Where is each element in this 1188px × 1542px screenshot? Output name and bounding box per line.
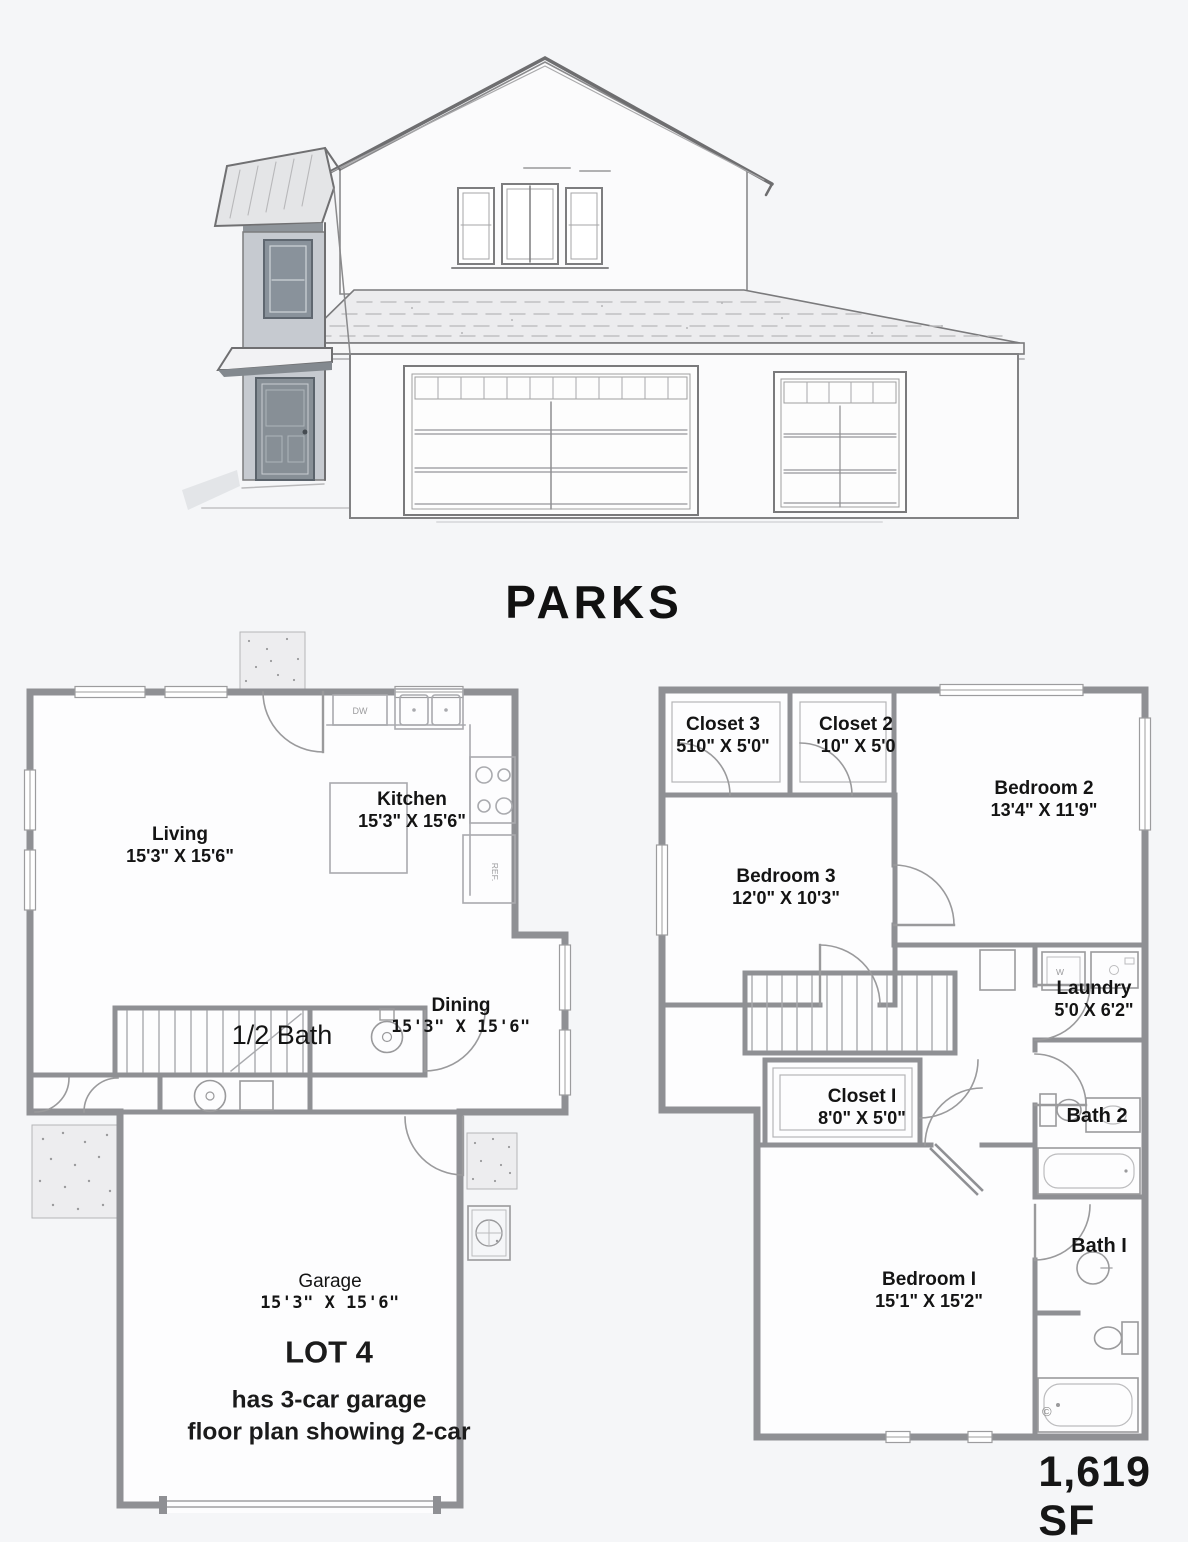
refrigerator-label: REF. bbox=[490, 863, 500, 881]
room-dims: 5'0 X 6'2" bbox=[1054, 1001, 1133, 1022]
room-name: Bedroom 3 bbox=[732, 866, 840, 888]
room-label-closet-1: Closet I 8'0" X 5'0" bbox=[818, 1086, 906, 1130]
plan-title: PARKS bbox=[505, 575, 683, 629]
room-name: Closet 2 bbox=[816, 714, 895, 736]
house-elevation-sketch bbox=[182, 18, 1027, 533]
room-label-bedroom-3: Bedroom 3 12'0" X 10'3" bbox=[732, 866, 840, 910]
room-label-garage: Garage 15'3" X 15'6" bbox=[260, 1271, 400, 1313]
lot-note: LOT 4 has 3-car garage floor plan showin… bbox=[187, 1335, 470, 1450]
room-dims: 15'3" X 15'6" bbox=[391, 1017, 531, 1037]
room-name: Dining bbox=[391, 995, 531, 1017]
room-label-laundry: Laundry 5'0 X 6'2" bbox=[1054, 978, 1133, 1022]
room-label-bedroom-1: Bedroom I 15'1" X 15'2" bbox=[875, 1269, 983, 1313]
lot-note-line2: floor plan showing 2-car bbox=[187, 1417, 470, 1449]
room-label-half-bath: 1/2 Bath bbox=[232, 1020, 333, 1052]
room-label-bedroom-2: Bedroom 2 13'4" X 11'9" bbox=[991, 778, 1098, 822]
floor-plan-flyer: PARKS bbox=[0, 0, 1188, 1542]
room-name: Bedroom I bbox=[875, 1269, 983, 1291]
room-label-living: Living 15'3" X 15'6" bbox=[126, 824, 234, 868]
room-label-closet-2: Closet 2 '10" X 5'0 bbox=[816, 714, 895, 758]
room-dims: 13'4" X 11'9" bbox=[991, 801, 1098, 822]
room-dims: 12'0" X 10'3" bbox=[732, 889, 840, 910]
room-name: Closet 3 bbox=[676, 714, 769, 736]
lot-note-title: LOT 4 bbox=[187, 1335, 470, 1371]
total-area-label: 1,619 SF bbox=[1038, 1448, 1151, 1542]
dishwasher-label: DW bbox=[353, 706, 368, 716]
room-name: Kitchen bbox=[358, 789, 466, 811]
room-label-bath-1: Bath I bbox=[1071, 1235, 1127, 1259]
copyright-mark: © bbox=[1042, 1404, 1052, 1419]
lot-note-line1: has 3-car garage bbox=[187, 1385, 470, 1417]
room-dims: 15'3" X 15'6" bbox=[260, 1293, 400, 1313]
room-dims: 8'0" X 5'0" bbox=[818, 1109, 906, 1130]
room-dims: 15'1" X 15'2" bbox=[875, 1292, 983, 1313]
room-name: Bedroom 2 bbox=[991, 778, 1098, 800]
room-dims: '10" X 5'0 bbox=[816, 737, 895, 758]
washer-label: W bbox=[1056, 967, 1064, 977]
room-label-kitchen: Kitchen 15'3" X 15'6" bbox=[358, 789, 466, 833]
room-dims: 15'3" X 15'6" bbox=[358, 812, 466, 833]
room-dims: 15'3" X 15'6" bbox=[126, 847, 234, 868]
room-label-dining: Dining 15'3" X 15'6" bbox=[391, 995, 531, 1037]
room-name: Living bbox=[126, 824, 234, 846]
room-name: Laundry bbox=[1054, 978, 1133, 1000]
room-label-closet-3: Closet 3 510" X 5'0" bbox=[676, 714, 769, 758]
room-label-bath-2: Bath 2 bbox=[1066, 1105, 1127, 1129]
room-dims: 510" X 5'0" bbox=[676, 737, 769, 758]
room-name: Garage bbox=[260, 1271, 400, 1293]
room-name: Closet I bbox=[818, 1086, 906, 1108]
